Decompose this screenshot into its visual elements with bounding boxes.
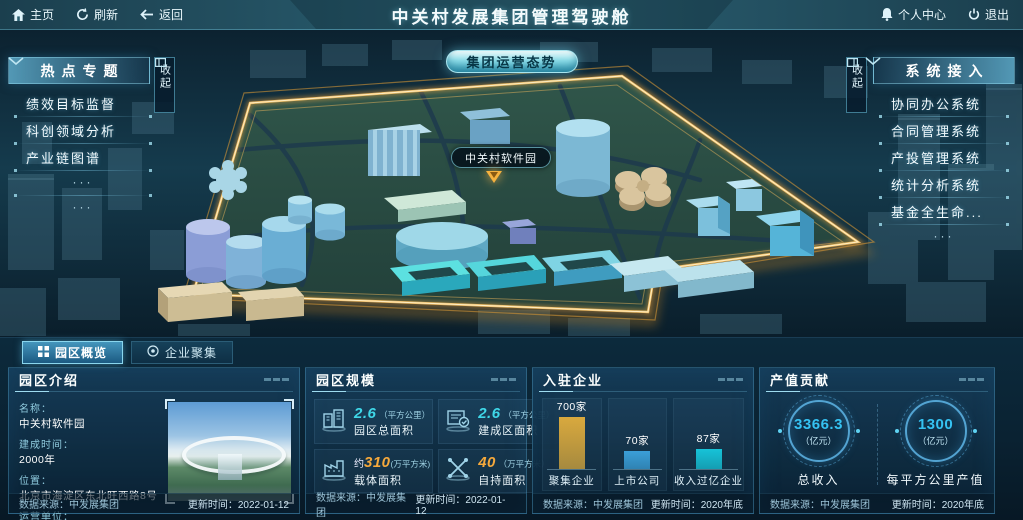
- stat-unit: （平方公里）: [379, 410, 430, 420]
- hot-topics-panel: 热点专题 收起 绩效目标监督 科创领域分析 产业链图谱 ··· ···: [8, 57, 158, 218]
- group-operation-button[interactable]: 集团运营态势: [445, 50, 577, 73]
- gauge-output-per-km: 1300 （亿元） 每平方公里产值: [877, 400, 994, 493]
- gauge-label: 总收入: [797, 471, 839, 488]
- panel-header-deco: [718, 378, 743, 381]
- divider: [14, 143, 152, 144]
- park-scale-panel: 园区规模 2.6 （平方公里） 园区总面积 2.6 （平方公里） 建成: [305, 367, 527, 514]
- bar-value: 70家: [625, 433, 649, 448]
- system-list: 协同办公系统 合同管理系统 产投管理系统 统计分析系统 基金全生命... ···: [873, 94, 1015, 247]
- divider: [14, 116, 152, 117]
- panel-title: 园区介绍: [19, 370, 79, 389]
- stat-label: 园区总面积: [354, 425, 430, 438]
- system-item[interactable]: 基金全生命...: [873, 202, 1015, 220]
- bar-column: 87家 收入过亿企业: [673, 398, 744, 491]
- data-source: 数据来源：中发展集团: [316, 489, 415, 519]
- bar-value: 700家: [557, 399, 587, 414]
- stat-unit: (万平方米): [391, 459, 431, 469]
- personal-center-button[interactable]: 个人中心: [881, 6, 946, 23]
- update-time: 更新时间：2022-01-12: [415, 491, 516, 517]
- tab-label: 园区概览: [55, 344, 107, 361]
- divider: [14, 170, 152, 171]
- hot-topics-scroll-down[interactable]: [8, 216, 158, 218]
- hot-topics-list: 绩效目标监督 科创领域分析 产业链图谱 ··· ···: [8, 94, 158, 218]
- divider: [879, 143, 1009, 144]
- tab-label: 企业聚集: [165, 344, 217, 361]
- hot-topics-collapse-button[interactable]: 收起: [154, 57, 175, 113]
- field-label: 名称：: [19, 400, 160, 415]
- bar-category: 聚集企业: [549, 473, 595, 488]
- back-button[interactable]: 返回: [140, 6, 183, 23]
- bottom-section: 园区概览 企业聚集 园区介绍 名称： 中关村软件园 建成时间：: [0, 337, 1023, 520]
- gauge-circle: 3366.3 （亿元）: [788, 400, 850, 462]
- bar-column: 700家 聚集企业: [542, 398, 602, 491]
- back-arrow-icon: [140, 9, 154, 20]
- field-value: 2000年: [19, 452, 160, 467]
- stat-label: 载体面积: [354, 475, 430, 488]
- park-map-label[interactable]: 中关村软件园: [451, 147, 551, 168]
- bar: [624, 451, 650, 469]
- panel-header-deco: [264, 378, 289, 381]
- collapse-label: 收起: [157, 64, 173, 90]
- topic-item[interactable]: 产业链图谱: [8, 148, 158, 166]
- stat-value: 2.6: [354, 405, 376, 422]
- bar-category: 上市公司: [614, 473, 660, 488]
- crossed-tools-icon: [445, 455, 471, 486]
- system-placeholder: ···: [873, 229, 1015, 245]
- topic-item[interactable]: 绩效目标监督: [8, 94, 158, 112]
- update-time: 更新时间：2020年底: [651, 496, 743, 511]
- panel-title: 入驻企业: [543, 370, 603, 389]
- gauge-value: 3366.3: [794, 416, 843, 433]
- stat-total-area: 2.6 （平方公里） 园区总面积: [314, 399, 433, 444]
- stat-value: 310: [364, 454, 391, 471]
- data-source: 数据来源：中发展集团: [19, 496, 119, 511]
- data-source: 数据来源：中发展集团: [543, 496, 643, 511]
- panel-title: 产值贡献: [770, 370, 830, 389]
- topic-item[interactable]: 科创领域分析: [8, 121, 158, 139]
- map-pin-icon: [486, 171, 502, 183]
- output-gauges: 3366.3 （亿元） 总收入 1300 （亿元） 每平方公里产值: [760, 394, 994, 493]
- stat-prefix: 约: [354, 459, 364, 470]
- system-item[interactable]: 统计分析系统: [873, 175, 1015, 193]
- gauge-circle: 1300 （亿元）: [905, 400, 967, 462]
- home-icon: [12, 9, 25, 21]
- gauge-total-revenue: 3366.3 （亿元） 总收入: [760, 400, 877, 493]
- city-map: 集团运营态势 中关村软件园 热点专题 收起 绩效目标监督 科创领域分析 产业链图…: [0, 30, 1023, 337]
- page-title: 中关村发展集团管理驾驶舱: [392, 0, 632, 30]
- update-time: 更新时间：2020年底: [892, 496, 984, 511]
- bar: [696, 449, 722, 469]
- blueprint-check-icon: [445, 406, 471, 437]
- system-access-panel: 系统接入 收起 协同办公系统 合同管理系统 产投管理系统 统计分析系统 基金全生…: [865, 57, 1015, 247]
- bar: [559, 417, 585, 469]
- update-time: 更新时间：2022-01-12: [188, 496, 289, 511]
- gauge-unit: （亿元）: [800, 434, 836, 447]
- stat-value: 2.6: [478, 405, 500, 422]
- park-intro-panel: 园区介绍 名称： 中关村软件园 建成时间： 2000年 位置： 北京市海淀区东北…: [8, 367, 300, 514]
- output-value-panel: 产值贡献 3366.3 （亿元） 总收入: [759, 367, 995, 514]
- topic-placeholder: ···: [8, 175, 158, 191]
- panel-header-deco: [491, 378, 516, 381]
- gauge-unit: （亿元）: [917, 434, 953, 447]
- panel-header-deco: [959, 378, 984, 381]
- bar-column: 70家 上市公司: [608, 398, 668, 491]
- gauge-label: 每平方公里产值: [886, 471, 984, 488]
- target-icon: [147, 345, 159, 360]
- resident-enterprises-panel: 入驻企业 700家 聚集企业 70家: [532, 367, 754, 514]
- personal-center-label: 个人中心: [898, 6, 946, 23]
- topic-placeholder: ···: [8, 200, 158, 216]
- home-label: 主页: [30, 6, 54, 23]
- logout-label: 退出: [985, 6, 1009, 23]
- stat-value: 40: [478, 454, 496, 471]
- field-label: 建成时间：: [19, 436, 160, 451]
- system-item[interactable]: 合同管理系统: [873, 121, 1015, 139]
- bell-icon: [881, 8, 893, 21]
- divider: [879, 197, 1009, 198]
- panel-title: 园区规模: [316, 370, 376, 389]
- system-access-collapse-button[interactable]: 收起: [846, 57, 867, 113]
- home-button[interactable]: 主页: [12, 6, 54, 23]
- power-icon: [968, 8, 980, 21]
- data-source: 数据来源：中发展集团: [770, 496, 870, 511]
- bar-value: 87家: [697, 431, 721, 446]
- gauge-value: 1300: [918, 416, 953, 433]
- refresh-label: 刷新: [94, 6, 118, 23]
- divider: [14, 195, 152, 196]
- top-nav: 主页 刷新 返回: [0, 6, 183, 23]
- field-label: 位置：: [19, 472, 160, 487]
- logout-button[interactable]: 退出: [968, 6, 1009, 23]
- collapse-label: 收起: [849, 64, 865, 90]
- panel-row: 园区介绍 名称： 中关村软件园 建成时间： 2000年 位置： 北京市海淀区东北…: [8, 367, 995, 514]
- system-scroll-down[interactable]: [873, 245, 1015, 247]
- system-item[interactable]: 协同办公系统: [873, 94, 1015, 112]
- divider: [879, 116, 1009, 117]
- back-label: 返回: [159, 6, 183, 23]
- grid-icon: [38, 346, 49, 360]
- enterprise-bar-chart: 700家 聚集企业 70家 上市公司 87家: [533, 394, 753, 493]
- bar-category: 收入过亿企业: [674, 473, 743, 488]
- divider: [879, 170, 1009, 171]
- tab-enterprise-cluster[interactable]: 企业聚集: [131, 341, 233, 364]
- bottom-tabs: 园区概览 企业聚集: [22, 341, 233, 364]
- dashboard-root: 主页 刷新 返回 中关村发展集团管理驾驶舱 个人中心 退出: [0, 0, 1023, 520]
- tab-park-overview[interactable]: 园区概览: [22, 341, 123, 364]
- park-photo: [168, 402, 291, 501]
- buildings-icon: [321, 406, 347, 437]
- top-bar: 主页 刷新 返回 中关村发展集团管理驾驶舱 个人中心 退出: [0, 0, 1023, 30]
- top-right-nav: 个人中心 退出: [881, 6, 1023, 23]
- system-access-title: 系统接入: [873, 57, 1015, 84]
- system-item[interactable]: 产投管理系统: [873, 148, 1015, 166]
- hot-topics-title: 热点专题: [8, 57, 150, 84]
- refresh-icon: [76, 8, 89, 21]
- field-value: 中关村软件园: [19, 416, 160, 431]
- refresh-button[interactable]: 刷新: [76, 6, 118, 23]
- stat-carrier-area: 约310(万平方米) 载体面积: [314, 449, 433, 494]
- divider: [879, 224, 1009, 225]
- factory-icon: [321, 455, 347, 486]
